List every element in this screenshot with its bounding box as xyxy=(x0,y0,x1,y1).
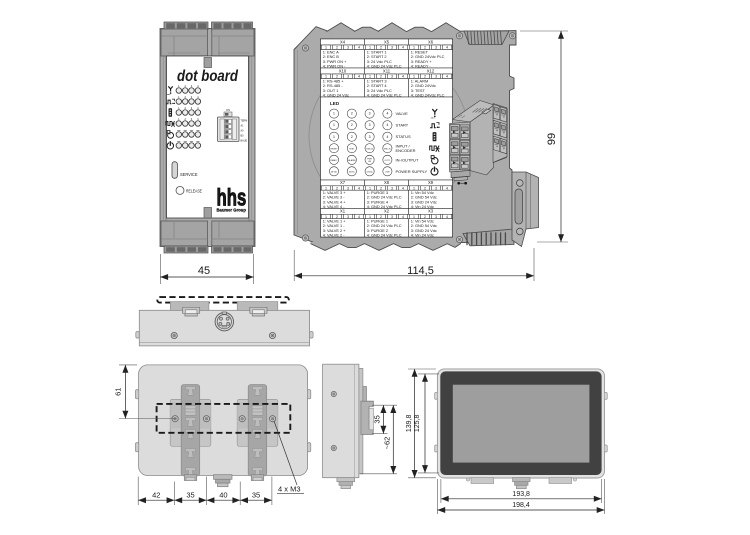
svg-text:POWER SUPPLY: POWER SUPPLY xyxy=(396,169,428,174)
svg-text:VALVE: VALVE xyxy=(396,111,409,116)
svg-text:4: Vin 24 Vdc: 4: Vin 24 Vdc xyxy=(411,233,434,238)
svg-text:4: 4 xyxy=(358,75,360,79)
svg-text:4: VALVE 2 -: 4: VALVE 2 - xyxy=(323,233,346,238)
svg-text:35: 35 xyxy=(252,490,260,499)
svg-text:3: 3 xyxy=(347,75,349,79)
svg-text:X1: X1 xyxy=(340,209,346,214)
svg-text:4 x M3: 4 x M3 xyxy=(278,485,301,494)
svg-text:42: 42 xyxy=(152,490,160,499)
svg-text:X9: X9 xyxy=(428,180,434,185)
svg-text:4: 4 xyxy=(446,215,448,219)
svg-text:X7: X7 xyxy=(340,180,346,185)
svg-text:3: 3 xyxy=(391,186,393,190)
svg-text:X5: X5 xyxy=(384,39,390,44)
svg-text:SERVICE: SERVICE xyxy=(180,172,198,177)
svg-text:X10: X10 xyxy=(339,68,347,73)
svg-text:X8: X8 xyxy=(384,180,390,185)
svg-text:198,4: 198,4 xyxy=(512,502,530,509)
svg-text:4: 4 xyxy=(358,186,360,190)
svg-text:RESET: RESET xyxy=(331,148,339,150)
svg-text:BAUD: BAUD xyxy=(241,140,248,143)
svg-text:4: 4 xyxy=(358,46,360,50)
svg-text:2: 2 xyxy=(351,123,353,127)
svg-text:35: 35 xyxy=(186,490,194,499)
svg-text:35: 35 xyxy=(372,415,381,423)
svg-text:4: 4 xyxy=(386,112,388,116)
svg-text:ENC A: ENC A xyxy=(366,147,373,150)
svg-text:3: 3 xyxy=(369,112,371,116)
svg-text:54Vdc: 54Vdc xyxy=(349,171,355,173)
svg-text:Baumer Group: Baumer Group xyxy=(217,207,247,212)
svg-text:193,8: 193,8 xyxy=(512,491,530,498)
svg-text:114,5: 114,5 xyxy=(407,265,434,277)
svg-text:X3: X3 xyxy=(428,209,434,214)
svg-text:3: 3 xyxy=(435,215,437,219)
svg-text:TERM: TERM xyxy=(241,120,248,123)
svg-text:48 Vdc: 48 Vdc xyxy=(331,171,337,173)
svg-text:61: 61 xyxy=(113,388,122,396)
svg-text:3,3Vdc: 3,3Vdc xyxy=(366,171,372,173)
svg-text:~62: ~62 xyxy=(382,437,391,450)
svg-text:TEST: TEST xyxy=(349,148,355,150)
svg-text:4: 4 xyxy=(402,186,404,190)
svg-text:4: 4 xyxy=(386,135,388,139)
svg-text:4: 4 xyxy=(446,186,448,190)
svg-text:X2: X2 xyxy=(384,209,390,214)
svg-text:4: 4 xyxy=(402,215,404,219)
svg-text:3: 3 xyxy=(347,215,349,219)
svg-text:X11: X11 xyxy=(383,68,391,73)
svg-text:1: 1 xyxy=(333,135,335,139)
svg-text:3: 3 xyxy=(435,186,437,190)
svg-text:ON: ON xyxy=(226,108,230,112)
svg-text:LIVE: LIVE xyxy=(385,171,390,173)
svg-text:START: START xyxy=(396,123,409,128)
svg-text:4: 4 xyxy=(402,75,404,79)
svg-text:ALARM: ALARM xyxy=(348,159,355,162)
svg-text:3: 3 xyxy=(369,123,371,127)
svg-text:4: 4 xyxy=(446,75,448,79)
svg-text:X6: X6 xyxy=(428,39,434,44)
svg-text:3: 3 xyxy=(347,46,349,50)
svg-text:2: 2 xyxy=(351,112,353,116)
svg-text:3: 3 xyxy=(347,186,349,190)
svg-text:3: 3 xyxy=(369,135,371,139)
svg-text:45: 45 xyxy=(198,265,210,277)
svg-text:LED: LED xyxy=(330,101,340,106)
svg-text:RELEASE: RELEASE xyxy=(186,188,202,193)
svg-text:125,8: 125,8 xyxy=(414,415,421,433)
svg-text:4: GND 24 Vdc PLC: 4: GND 24 Vdc PLC xyxy=(367,233,402,238)
svg-text:X4: X4 xyxy=(340,39,346,44)
svg-text:4: 4 xyxy=(446,46,448,50)
svg-text:139,8: 139,8 xyxy=(406,415,413,433)
svg-text:dot board: dot board xyxy=(177,68,239,85)
svg-text:ENC B: ENC B xyxy=(384,148,391,150)
svg-text:1: 1 xyxy=(333,123,335,127)
svg-text:STATUS: STATUS xyxy=(396,134,412,139)
svg-text:40: 40 xyxy=(219,490,227,499)
svg-text:3: 3 xyxy=(435,46,437,50)
svg-text:2: 2 xyxy=(351,135,353,139)
svg-text:READY: READY xyxy=(330,159,338,162)
svg-text:ENCODER: ENCODER xyxy=(396,148,416,153)
svg-text:4: 4 xyxy=(402,46,404,50)
svg-text:4: 4 xyxy=(386,123,388,127)
svg-text:3: 3 xyxy=(391,46,393,50)
svg-text:3: 3 xyxy=(391,215,393,219)
svg-text:3: 3 xyxy=(435,75,437,79)
svg-text:1: 1 xyxy=(333,112,335,116)
svg-text:IN-/OUTPUT: IN-/OUTPUT xyxy=(396,157,419,162)
svg-text:ON: ON xyxy=(368,161,372,163)
svg-text:4: 4 xyxy=(358,215,360,219)
svg-text:99: 99 xyxy=(546,133,558,145)
svg-text:X12: X12 xyxy=(427,68,435,73)
svg-text:3: 3 xyxy=(391,75,393,79)
svg-text:OUT 1: OUT 1 xyxy=(384,160,391,162)
